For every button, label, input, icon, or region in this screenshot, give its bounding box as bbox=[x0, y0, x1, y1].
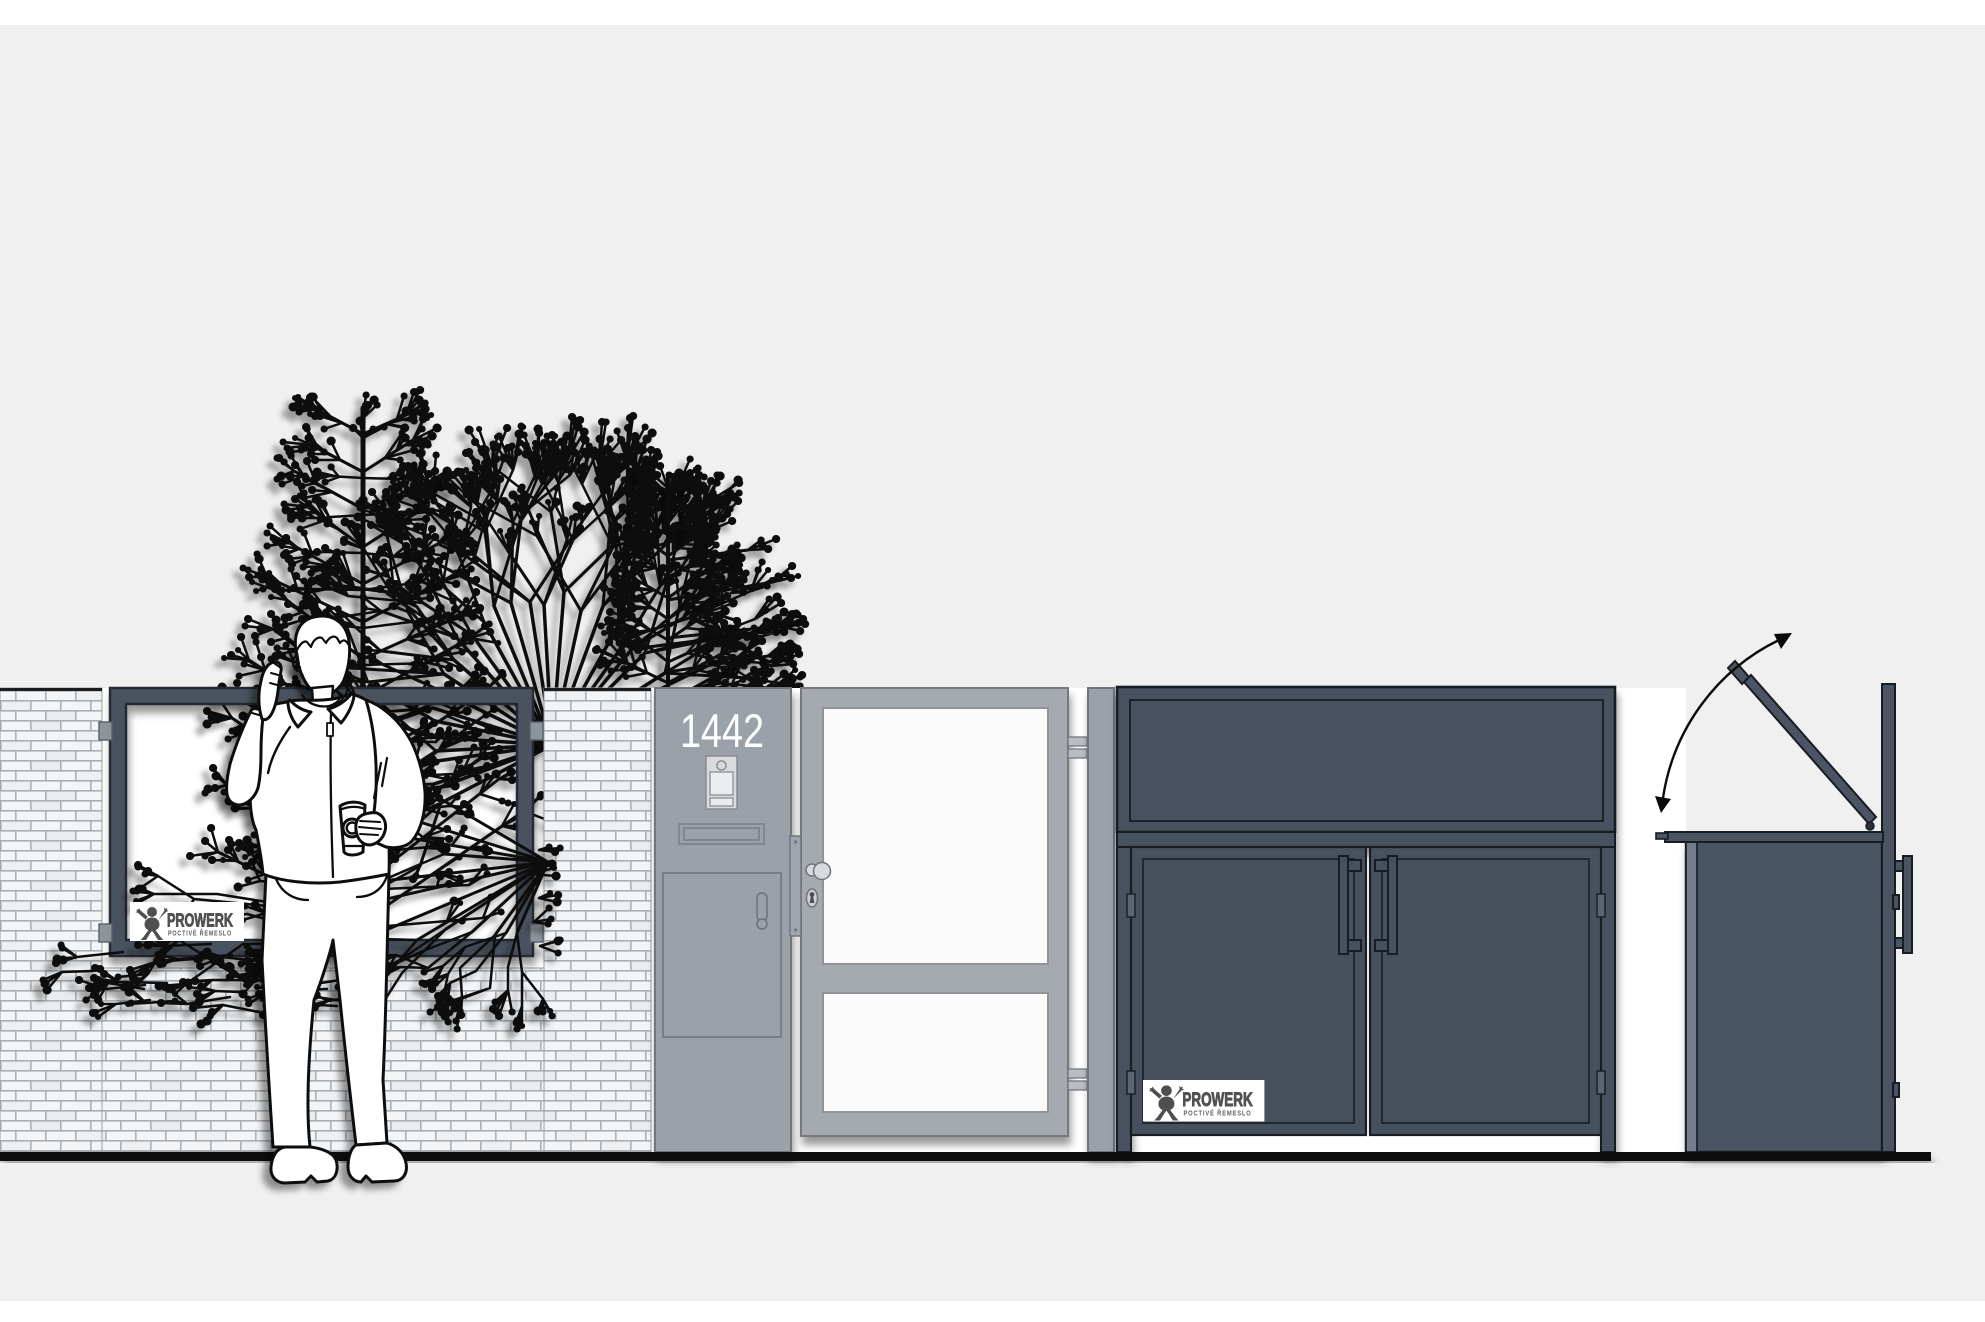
svg-text:1442: 1442 bbox=[680, 704, 764, 757]
